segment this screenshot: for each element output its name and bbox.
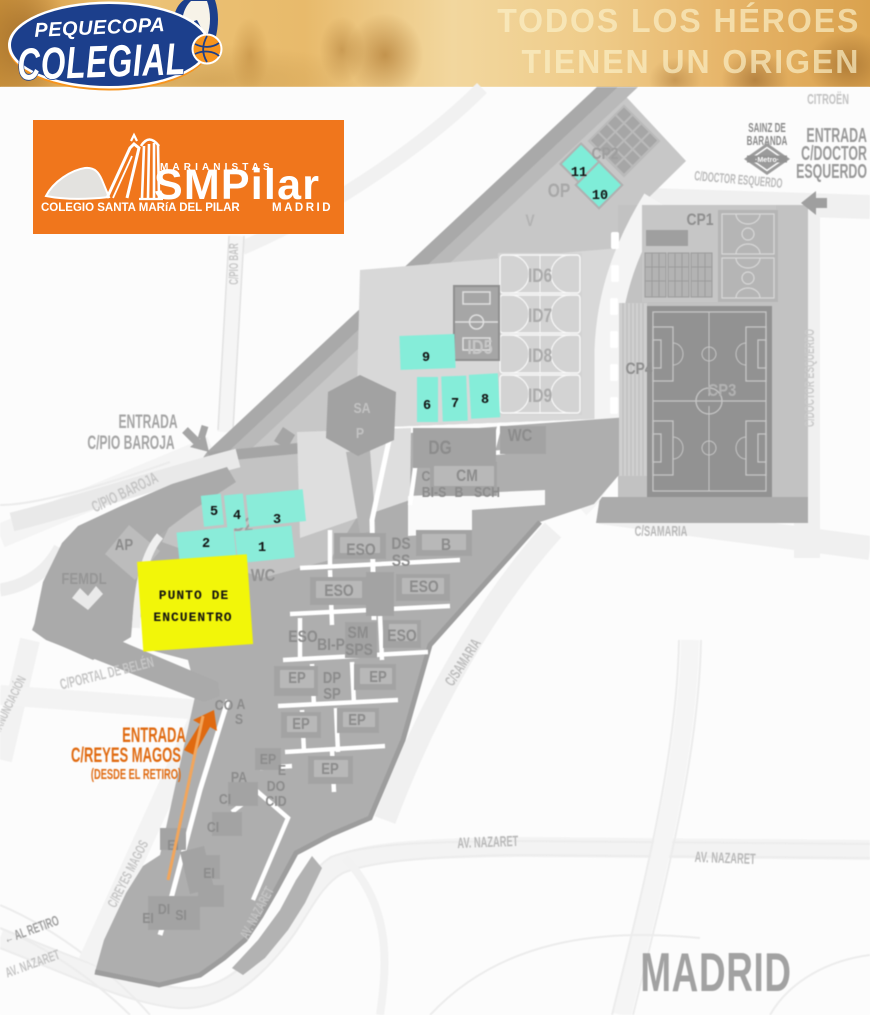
svg-text:(DESDE EL RETIRO): (DESDE EL RETIRO)	[91, 766, 181, 783]
svg-text:4: 4	[233, 509, 241, 524]
svg-text:10: 10	[592, 189, 608, 204]
svg-text:OP: OP	[548, 180, 571, 202]
svg-text:EP: EP	[369, 669, 387, 686]
svg-text:EI: EI	[203, 865, 215, 881]
svg-text:6: 6	[423, 399, 431, 414]
svg-text:V: V	[525, 212, 535, 231]
svg-text:7: 7	[451, 397, 459, 412]
svg-text:C: C	[422, 468, 431, 484]
svg-text:SCH: SCH	[474, 484, 500, 500]
svg-text:ID9: ID9	[528, 385, 553, 407]
svg-text:DG: DG	[428, 437, 451, 459]
svg-text:8: 8	[481, 393, 489, 408]
svg-text:C/SAMARIA: C/SAMARIA	[635, 523, 688, 540]
svg-text:EP: EP	[260, 751, 276, 767]
svg-text:MADRID: MADRID	[272, 202, 333, 214]
svg-text:C/PIO BAR: C/PIO BAR	[227, 243, 241, 285]
svg-text:CITROËN: CITROËN	[807, 90, 849, 108]
svg-text:EP: EP	[288, 670, 306, 687]
svg-text:WC: WC	[508, 426, 533, 446]
svg-text:CP2: CP2	[591, 145, 618, 164]
svg-text:EP: EP	[348, 712, 366, 729]
svg-text:COLEGIAL: COLEGIAL	[17, 35, 187, 91]
svg-text:ESO: ESO	[346, 541, 375, 560]
svg-text:ID7: ID7	[528, 305, 552, 327]
svg-text:BI-S: BI-S	[422, 484, 447, 500]
svg-text:EP: EP	[321, 761, 339, 778]
svg-text:CP1: CP1	[686, 211, 713, 230]
svg-text:AP: AP	[115, 537, 133, 554]
svg-text:ENCUENTRO: ENCUENTRO	[153, 610, 232, 625]
svg-text:DP: DP	[323, 670, 341, 687]
svg-text:B: B	[455, 484, 464, 500]
svg-text:EI: EI	[142, 910, 154, 926]
svg-text:CM: CM	[456, 467, 478, 486]
svg-text:5: 5	[210, 505, 218, 520]
svg-text:P: P	[356, 425, 364, 441]
svg-text:ID8: ID8	[528, 345, 553, 367]
svg-text:SM: SM	[348, 624, 369, 643]
svg-text:1: 1	[258, 541, 266, 556]
svg-text:CI: CI	[207, 819, 219, 835]
svg-text:E: E	[278, 762, 286, 778]
svg-text:ESO: ESO	[324, 582, 353, 601]
svg-text:SP: SP	[323, 686, 341, 703]
svg-text:CP3: CP3	[708, 381, 737, 401]
svg-text:SPS: SPS	[345, 641, 373, 660]
svg-text:SA: SA	[353, 400, 370, 416]
svg-text:3: 3	[273, 513, 281, 528]
svg-text:ID6: ID6	[528, 265, 553, 287]
svg-text:CI: CI	[219, 791, 231, 807]
svg-text:PUNTO DE: PUNTO DE	[159, 588, 229, 603]
svg-text:A: A	[237, 696, 246, 712]
svg-text:MADRID: MADRID	[640, 942, 791, 1003]
svg-text:CO: CO	[215, 697, 234, 713]
svg-text:BI-P: BI-P	[317, 636, 345, 655]
svg-text:WC: WC	[251, 566, 276, 586]
svg-text:DO: DO	[267, 778, 286, 794]
svg-text:11: 11	[571, 166, 587, 181]
svg-text:EP: EP	[292, 716, 310, 733]
svg-text:CID: CID	[265, 793, 286, 809]
svg-text:COLEGIO SANTA MARíA DEL PILAR: COLEGIO SANTA MARíA DEL PILAR	[41, 202, 240, 214]
svg-text:AV. NAZARET: AV. NAZARET	[457, 833, 519, 852]
svg-text:ESQUERDO: ESQUERDO	[796, 160, 867, 183]
svg-text:PA: PA	[231, 769, 247, 785]
svg-text:ESO: ESO	[387, 627, 416, 646]
svg-text:DS: DS	[391, 535, 410, 554]
svg-text:C/DOCTOR ESQUERDO: C/DOCTOR ESQUERDO	[802, 329, 818, 427]
svg-text:B: B	[441, 536, 451, 555]
svg-text:9: 9	[422, 351, 430, 366]
svg-text:S: S	[235, 711, 243, 727]
svg-text:ESO: ESO	[288, 628, 317, 647]
svg-text:CP4: CP4	[625, 360, 652, 379]
svg-text:ENTRADA: ENTRADA	[118, 411, 177, 433]
svg-text:SI: SI	[175, 907, 187, 923]
svg-text:ESO: ESO	[409, 578, 438, 597]
svg-text:ID5: ID5	[467, 335, 493, 358]
svg-text:2: 2	[202, 537, 210, 552]
svg-text:C/REYES MAGOS: C/REYES MAGOS	[71, 743, 181, 767]
svg-text:C/PIO BAROJA: C/PIO BAROJA	[87, 432, 175, 454]
svg-text:DI: DI	[158, 901, 170, 917]
svg-text:FEMDL: FEMDL	[61, 571, 106, 588]
svg-text:AV. NAZARET: AV. NAZARET	[694, 849, 756, 868]
svg-text:·Metro·: ·Metro·	[755, 155, 779, 164]
svg-text:SS: SS	[392, 552, 411, 571]
